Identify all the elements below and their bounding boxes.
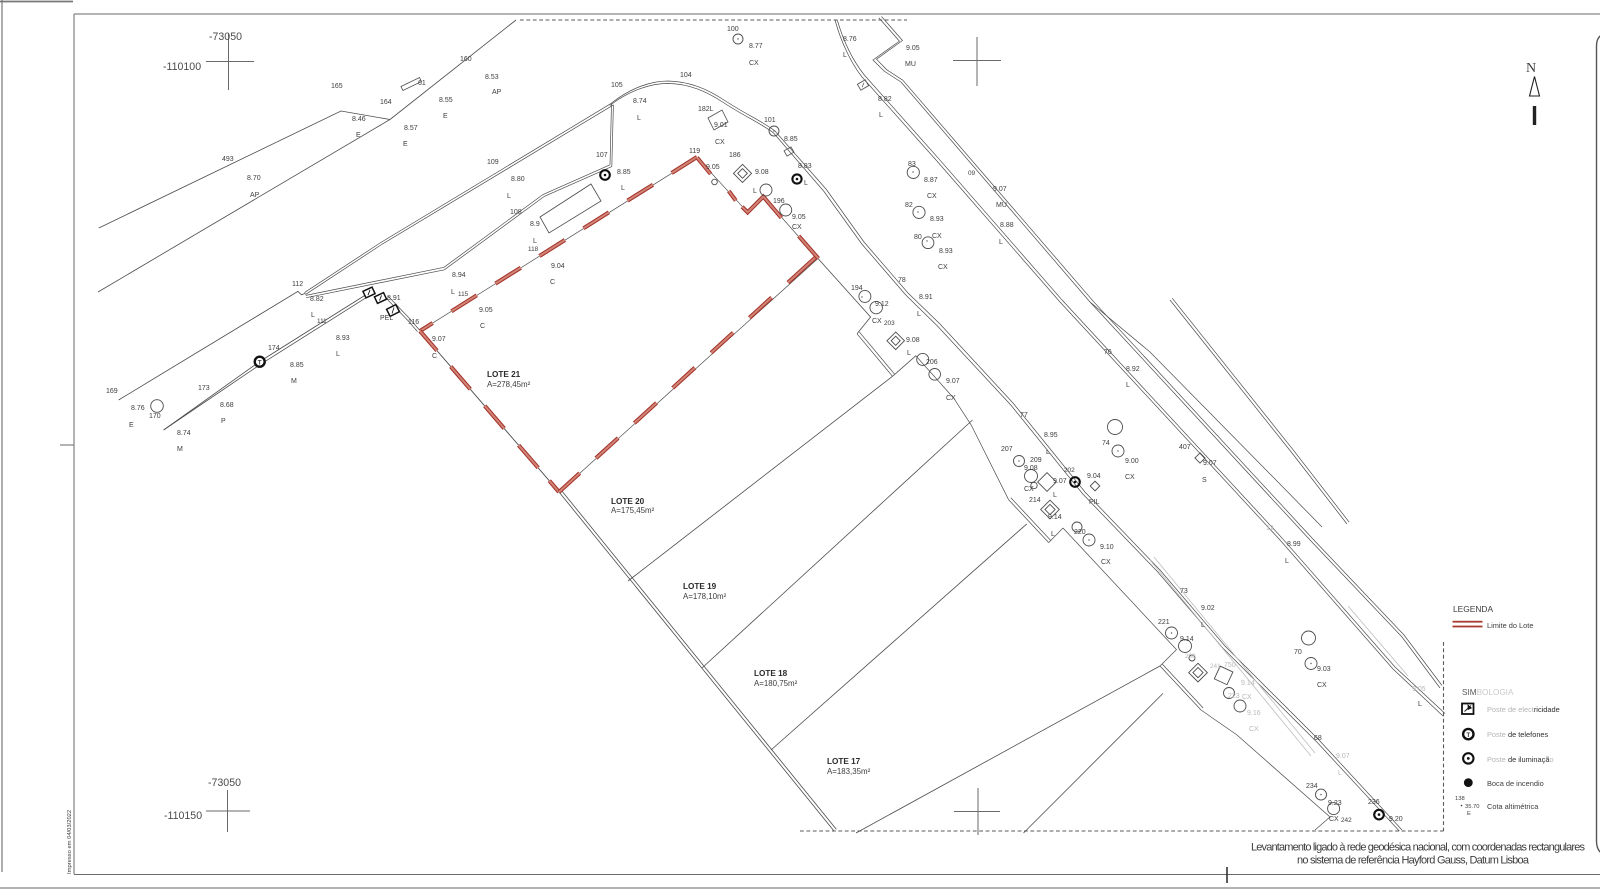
svg-text:-73050: -73050 bbox=[209, 31, 242, 43]
svg-text:9.07: 9.07 bbox=[993, 186, 1007, 193]
svg-text:PEL: PEL bbox=[380, 315, 393, 322]
svg-text:L: L bbox=[533, 238, 537, 245]
svg-text:L: L bbox=[621, 185, 625, 192]
svg-text:CX: CX bbox=[1242, 694, 1252, 701]
svg-text:9.23: 9.23 bbox=[1328, 800, 1342, 807]
svg-text:100: 100 bbox=[727, 26, 739, 33]
svg-text:8.74: 8.74 bbox=[633, 98, 647, 105]
svg-text:165: 165 bbox=[331, 83, 343, 90]
svg-text:M: M bbox=[177, 446, 183, 453]
svg-text:CX: CX bbox=[927, 193, 937, 200]
svg-text:AP: AP bbox=[492, 89, 502, 96]
svg-text:493: 493 bbox=[222, 156, 234, 163]
svg-text:108: 108 bbox=[510, 209, 522, 216]
svg-text:09: 09 bbox=[968, 170, 976, 177]
svg-text:9.08: 9.08 bbox=[1024, 465, 1038, 472]
svg-text:8.76: 8.76 bbox=[131, 405, 145, 412]
svg-text:L: L bbox=[879, 112, 883, 119]
svg-text:70: 70 bbox=[1294, 649, 1302, 656]
svg-text:35.70: 35.70 bbox=[1465, 804, 1480, 810]
svg-text:209: 209 bbox=[1030, 457, 1042, 464]
svg-text:220: 220 bbox=[1074, 529, 1086, 536]
svg-text:78: 78 bbox=[898, 277, 906, 284]
svg-text:111: 111 bbox=[317, 318, 327, 325]
svg-text:241: 241 bbox=[1210, 663, 1221, 670]
svg-text:76: 76 bbox=[1104, 349, 1112, 356]
svg-text:182L: 182L bbox=[698, 106, 714, 113]
svg-text:169: 169 bbox=[106, 388, 118, 395]
svg-text:CX: CX bbox=[938, 264, 948, 271]
svg-text:C: C bbox=[480, 323, 485, 330]
svg-text:CX: CX bbox=[792, 224, 802, 231]
svg-text:9.05: 9.05 bbox=[792, 214, 806, 221]
svg-text:E: E bbox=[1467, 811, 1471, 817]
svg-text:8.93: 8.93 bbox=[930, 216, 944, 223]
svg-text:12: 12 bbox=[1266, 525, 1274, 532]
svg-text:186: 186 bbox=[729, 152, 741, 159]
svg-text:E: E bbox=[443, 113, 448, 120]
svg-text:9.07: 9.07 bbox=[1336, 753, 1350, 760]
svg-text:Cota altimétrica: Cota altimétrica bbox=[1487, 802, 1539, 811]
svg-text:223: 223 bbox=[1228, 693, 1240, 700]
svg-text:9.07: 9.07 bbox=[432, 336, 446, 343]
svg-text:L: L bbox=[637, 115, 641, 122]
svg-text:L: L bbox=[1201, 622, 1205, 629]
svg-text:C: C bbox=[550, 279, 555, 286]
svg-text:no sistema de referência Hayfo: no sistema de referência Hayford Gauss, … bbox=[1297, 855, 1530, 867]
svg-text:119: 119 bbox=[689, 148, 700, 155]
svg-text:8.82: 8.82 bbox=[878, 96, 892, 103]
svg-text:8.57: 8.57 bbox=[404, 125, 418, 132]
svg-text:A=175,45m²: A=175,45m² bbox=[611, 506, 655, 515]
svg-text:9.05: 9.05 bbox=[906, 45, 920, 52]
svg-text:9.14: 9.14 bbox=[1241, 680, 1255, 687]
svg-text:L: L bbox=[1046, 449, 1050, 456]
svg-text:9.01: 9.01 bbox=[714, 122, 728, 129]
svg-text:214: 214 bbox=[1029, 497, 1041, 504]
svg-text:LOTE 17: LOTE 17 bbox=[827, 757, 861, 766]
svg-text:9.10: 9.10 bbox=[1100, 544, 1114, 551]
svg-text:MU: MU bbox=[905, 61, 916, 68]
svg-text:9.05: 9.05 bbox=[706, 164, 720, 171]
svg-text:174: 174 bbox=[268, 345, 280, 352]
svg-text:82: 82 bbox=[905, 202, 913, 209]
svg-text:L: L bbox=[999, 239, 1003, 246]
svg-text:9.16: 9.16 bbox=[1247, 710, 1261, 717]
svg-text:SIMBOLOGIA: SIMBOLOGIA bbox=[1462, 688, 1514, 697]
svg-text:E: E bbox=[356, 132, 361, 139]
svg-text:8.87: 8.87 bbox=[924, 177, 938, 184]
svg-text:101: 101 bbox=[764, 117, 776, 124]
svg-text:9.14: 9.14 bbox=[1180, 636, 1194, 643]
svg-text:9.20: 9.20 bbox=[1389, 816, 1403, 823]
svg-text:8.77: 8.77 bbox=[749, 43, 763, 50]
svg-text:E: E bbox=[129, 422, 134, 429]
svg-text:221: 221 bbox=[1158, 619, 1170, 626]
svg-text:207: 207 bbox=[1001, 446, 1013, 453]
svg-text:8.70: 8.70 bbox=[247, 175, 261, 182]
svg-text:83: 83 bbox=[908, 161, 916, 168]
svg-text:CX: CX bbox=[1024, 486, 1034, 493]
svg-text:170: 170 bbox=[149, 413, 161, 420]
svg-text:242: 242 bbox=[1341, 817, 1352, 824]
svg-text:L: L bbox=[1285, 558, 1289, 565]
svg-text:Poste de electricidade: Poste de electricidade bbox=[1487, 705, 1560, 714]
svg-text:AP: AP bbox=[250, 192, 260, 199]
svg-text:9.04: 9.04 bbox=[551, 263, 565, 270]
svg-text:L: L bbox=[1053, 492, 1057, 499]
svg-text:8.9: 8.9 bbox=[530, 221, 540, 228]
svg-text:9.08: 9.08 bbox=[755, 169, 769, 176]
svg-text:Levantamento ligado à rede geo: Levantamento ligado à rede geodésica nac… bbox=[1251, 842, 1586, 854]
svg-text:8.88: 8.88 bbox=[1000, 222, 1014, 229]
svg-text:8.68: 8.68 bbox=[220, 402, 234, 409]
svg-text:109: 109 bbox=[487, 159, 499, 166]
svg-text:104: 104 bbox=[680, 72, 692, 79]
svg-text:8.99: 8.99 bbox=[1287, 541, 1301, 548]
svg-text:-110150: -110150 bbox=[164, 810, 202, 822]
svg-text:L: L bbox=[1126, 382, 1130, 389]
svg-text:202: 202 bbox=[1064, 467, 1075, 474]
svg-text:9.07: 9.07 bbox=[1053, 478, 1067, 485]
svg-text:L: L bbox=[1418, 701, 1422, 708]
svg-text:S: S bbox=[1202, 477, 1207, 484]
svg-text:L: L bbox=[311, 312, 315, 319]
svg-text:-110100: -110100 bbox=[163, 61, 201, 73]
svg-text:MU: MU bbox=[996, 202, 1007, 209]
svg-text:9.05: 9.05 bbox=[1412, 686, 1426, 693]
svg-text:Poste de telefones: Poste de telefones bbox=[1487, 730, 1549, 739]
svg-text:L: L bbox=[917, 311, 921, 318]
svg-text:L: L bbox=[907, 350, 911, 357]
svg-text:8.85: 8.85 bbox=[617, 169, 631, 176]
svg-text:236: 236 bbox=[1368, 799, 1380, 806]
svg-text:8.85: 8.85 bbox=[784, 136, 798, 143]
svg-text:8.83: 8.83 bbox=[798, 163, 812, 170]
svg-text:8.74: 8.74 bbox=[177, 430, 191, 437]
svg-text:9.07: 9.07 bbox=[1203, 460, 1217, 467]
svg-text:8.93: 8.93 bbox=[336, 335, 350, 342]
svg-text:C: C bbox=[432, 353, 437, 360]
svg-text:Impresso em 04/03/2022: Impresso em 04/03/2022 bbox=[67, 810, 73, 874]
svg-text:196: 196 bbox=[773, 198, 785, 205]
svg-text:L: L bbox=[1338, 770, 1342, 777]
svg-text:L: L bbox=[336, 351, 340, 358]
svg-text:8.82: 8.82 bbox=[310, 296, 324, 303]
svg-text:8.91: 8.91 bbox=[387, 295, 401, 302]
svg-text:9.03: 9.03 bbox=[1317, 666, 1331, 673]
svg-text:203: 203 bbox=[884, 320, 895, 327]
svg-text:234: 234 bbox=[1306, 783, 1318, 790]
svg-text:CX: CX bbox=[715, 139, 725, 146]
svg-text:68: 68 bbox=[1314, 735, 1322, 742]
svg-text:8.92: 8.92 bbox=[1126, 366, 1140, 373]
svg-text:73: 73 bbox=[1180, 588, 1188, 595]
svg-text:80: 80 bbox=[914, 234, 922, 241]
svg-text:9.12: 9.12 bbox=[875, 301, 889, 308]
svg-text:-73050: -73050 bbox=[208, 777, 241, 789]
svg-text:8.46: 8.46 bbox=[352, 116, 366, 123]
svg-text:LOTE 21: LOTE 21 bbox=[487, 370, 521, 379]
svg-text:A=278,45m²: A=278,45m² bbox=[487, 380, 531, 389]
svg-text:8.91: 8.91 bbox=[919, 294, 933, 301]
svg-text:A=180,75m²: A=180,75m² bbox=[754, 679, 798, 688]
svg-text:A=178,10m²: A=178,10m² bbox=[683, 592, 727, 601]
svg-text:9.04: 9.04 bbox=[1087, 473, 1101, 480]
svg-text:112: 112 bbox=[292, 281, 303, 288]
svg-text:8.53: 8.53 bbox=[485, 74, 499, 81]
svg-text:9.05: 9.05 bbox=[479, 307, 493, 314]
svg-text:L: L bbox=[804, 180, 808, 187]
svg-text:N: N bbox=[1526, 61, 1536, 76]
svg-text:L: L bbox=[451, 289, 455, 296]
svg-text:LOTE 18: LOTE 18 bbox=[754, 669, 788, 678]
svg-text:L: L bbox=[507, 193, 511, 200]
svg-text:CX: CX bbox=[1317, 682, 1327, 689]
svg-text:9.08: 9.08 bbox=[906, 337, 920, 344]
svg-text:Boca de incendio: Boca de incendio bbox=[1487, 779, 1544, 788]
svg-text:E: E bbox=[403, 141, 408, 148]
svg-text:L: L bbox=[753, 188, 757, 195]
svg-text:CX: CX bbox=[872, 318, 882, 325]
svg-text:CX: CX bbox=[932, 233, 942, 240]
svg-text:194: 194 bbox=[851, 285, 863, 292]
svg-text:PIL: PIL bbox=[1089, 499, 1100, 506]
svg-text:A=183,35m²: A=183,35m² bbox=[827, 767, 871, 776]
svg-text:750: 750 bbox=[1224, 662, 1236, 669]
svg-text:9.00: 9.00 bbox=[1125, 458, 1139, 465]
svg-text:8.93: 8.93 bbox=[939, 248, 953, 255]
svg-text:Limite do Lote: Limite do Lote bbox=[1487, 621, 1533, 630]
svg-text:L: L bbox=[1051, 531, 1055, 538]
svg-text:160: 160 bbox=[460, 56, 472, 63]
svg-text:L: L bbox=[843, 52, 847, 59]
svg-text:CX: CX bbox=[946, 395, 956, 402]
svg-text:T: T bbox=[1466, 732, 1470, 739]
svg-text:8.55: 8.55 bbox=[439, 97, 453, 104]
svg-text:CX: CX bbox=[1249, 726, 1259, 733]
svg-text:9.14: 9.14 bbox=[1048, 514, 1062, 521]
svg-text:8.95: 8.95 bbox=[1044, 432, 1058, 439]
svg-text:LEGENDA: LEGENDA bbox=[1453, 604, 1493, 614]
svg-text:138: 138 bbox=[1455, 796, 1465, 802]
svg-text:T: T bbox=[258, 359, 262, 366]
svg-text:CX: CX bbox=[1101, 559, 1111, 566]
svg-text:LOTE 19: LOTE 19 bbox=[683, 582, 717, 591]
svg-text:115: 115 bbox=[458, 291, 469, 298]
svg-text:8.80: 8.80 bbox=[511, 176, 525, 183]
svg-text:77: 77 bbox=[1020, 412, 1028, 419]
svg-text:118: 118 bbox=[528, 246, 539, 253]
svg-text:105: 105 bbox=[611, 82, 623, 89]
svg-text:LOTE 20: LOTE 20 bbox=[611, 497, 645, 506]
svg-text:CX: CX bbox=[749, 60, 759, 67]
svg-text:8.76: 8.76 bbox=[843, 36, 857, 43]
svg-text:407: 407 bbox=[1179, 444, 1191, 451]
svg-text:107: 107 bbox=[596, 152, 608, 159]
svg-text:173: 173 bbox=[198, 385, 210, 392]
svg-text:8.85: 8.85 bbox=[290, 362, 304, 369]
svg-text:CX: CX bbox=[1125, 474, 1135, 481]
svg-text:P: P bbox=[221, 418, 226, 425]
svg-text:M: M bbox=[291, 378, 297, 385]
svg-text:CX: CX bbox=[1329, 816, 1339, 823]
svg-text:206: 206 bbox=[926, 359, 938, 366]
svg-text:208: 208 bbox=[1185, 653, 1196, 660]
svg-text:164: 164 bbox=[380, 99, 392, 106]
svg-text:61: 61 bbox=[418, 80, 426, 87]
svg-text:9.02: 9.02 bbox=[1201, 605, 1215, 612]
svg-text:74: 74 bbox=[1102, 440, 1110, 447]
svg-text:116: 116 bbox=[408, 319, 419, 326]
svg-text:Poste de iluminação: Poste de iluminação bbox=[1487, 755, 1554, 764]
svg-text:8.94: 8.94 bbox=[452, 272, 466, 279]
svg-text:9.07: 9.07 bbox=[946, 378, 960, 385]
